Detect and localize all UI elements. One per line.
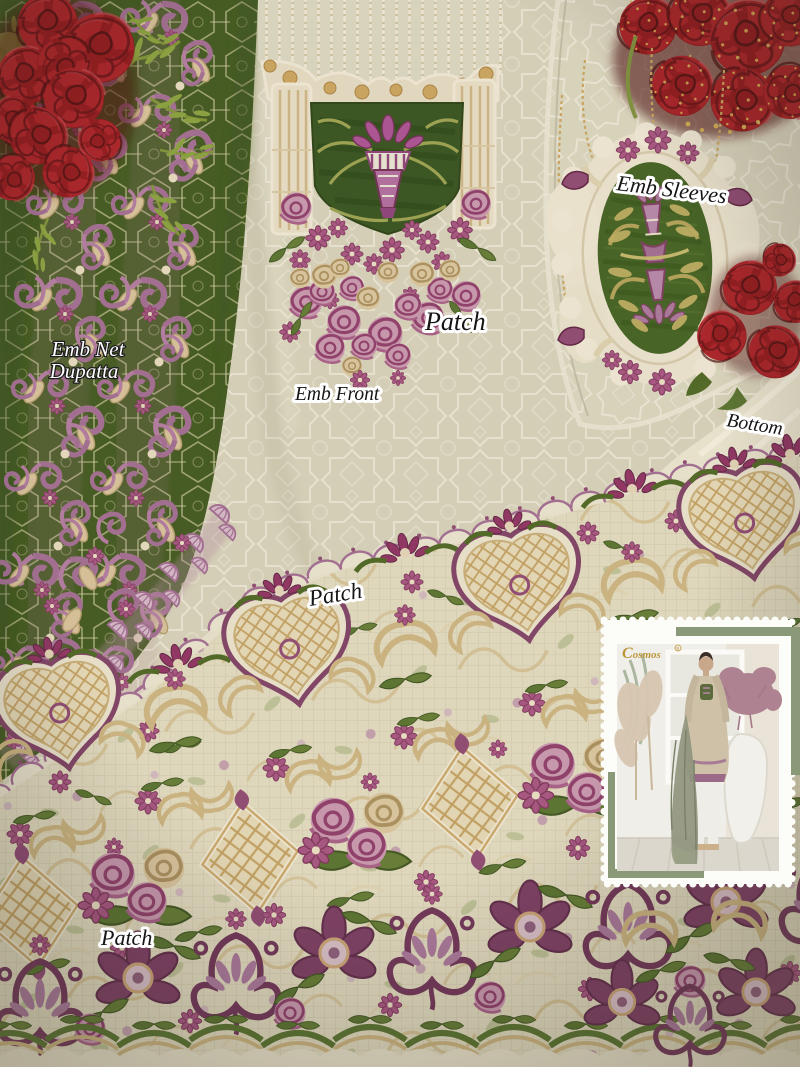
svg-text:Emb Front: Emb Front xyxy=(294,384,380,405)
svg-text:Patch: Patch xyxy=(100,925,152,950)
svg-text:Emb Net: Emb Net xyxy=(51,337,126,361)
svg-text:Dupatta: Dupatta xyxy=(49,359,119,383)
svg-text:Patch: Patch xyxy=(424,307,486,336)
